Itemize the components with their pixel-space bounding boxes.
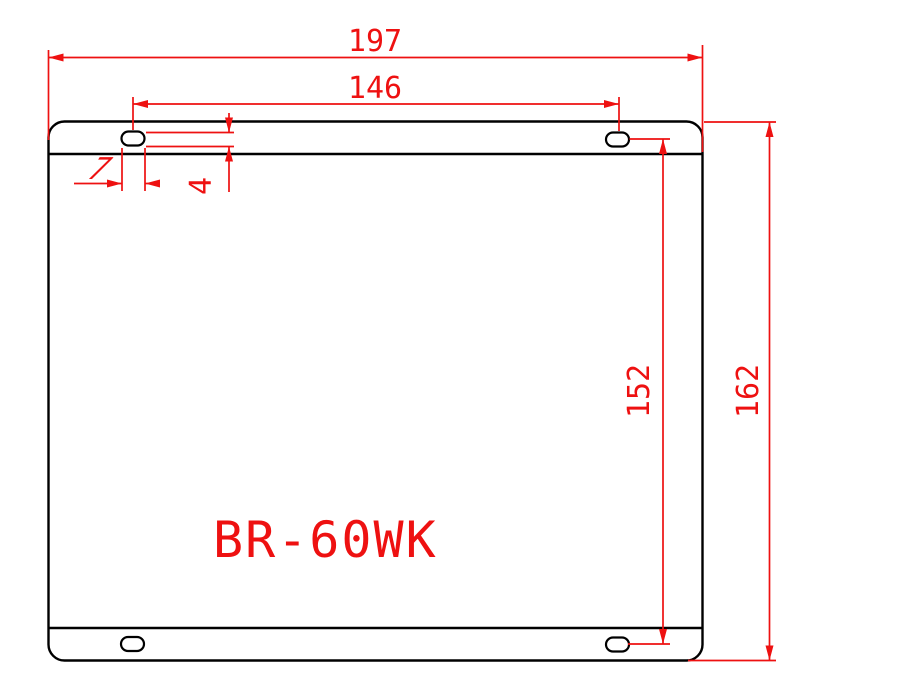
mounting-slot-bottom-right — [606, 638, 629, 652]
part-label: BR-60WK — [213, 511, 438, 569]
dimension-hole-spacing-vertical: 152 — [622, 139, 670, 644]
arrowhead-left — [49, 54, 64, 62]
arrowhead-top — [225, 118, 233, 133]
drawing-canvas: 197 146 162 152 — [0, 0, 902, 693]
arrowhead-right — [604, 100, 619, 108]
dimension-value-197: 197 — [348, 24, 402, 59]
technical-drawing: 197 146 162 152 — [0, 0, 902, 693]
arrowhead-bottom — [766, 646, 774, 661]
dimension-value-152: 152 — [622, 364, 657, 418]
body-outline — [49, 122, 703, 661]
mounting-slot-top-right — [606, 133, 629, 147]
dimension-value-4: 4 — [184, 177, 219, 195]
arrowhead-left — [133, 100, 148, 108]
arrowhead-right — [688, 54, 703, 62]
dimension-value-162: 162 — [731, 364, 766, 418]
dimension-overall-height: 162 — [688, 122, 776, 661]
arrowhead-bottom — [659, 629, 667, 644]
arrowhead-left — [107, 180, 122, 188]
part-outline — [49, 122, 703, 661]
dimension-value-7: 7 — [79, 152, 119, 187]
arrowhead-right — [145, 180, 160, 188]
mounting-slot-top-left — [122, 132, 145, 146]
dimension-value-146: 146 — [348, 71, 402, 106]
mounting-slot-bottom-left — [121, 637, 144, 651]
arrowhead-top — [659, 139, 667, 154]
arrowhead-top — [766, 122, 774, 137]
